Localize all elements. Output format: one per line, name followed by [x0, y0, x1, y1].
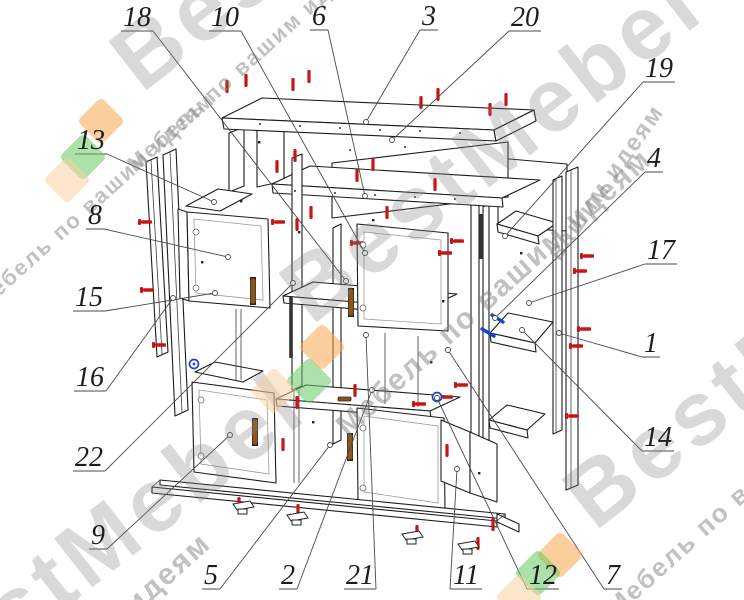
cam-screw-head	[580, 253, 583, 259]
cam-screw-marker	[583, 254, 594, 257]
hinge-hole	[193, 229, 199, 235]
cam-screw-head	[450, 238, 453, 244]
bottom-mid-door	[357, 408, 445, 511]
assembly-exploded-diagram	[0, 0, 744, 600]
drill-hole-dot	[454, 198, 456, 200]
hinge-hole	[193, 285, 199, 291]
drill-hole-dot	[379, 129, 381, 131]
leader-target-11	[455, 467, 460, 472]
dowel-marker	[353, 384, 356, 397]
leader-target-7	[446, 348, 451, 353]
door-handle	[349, 289, 354, 316]
door-handle-horizontal	[338, 397, 351, 401]
dowel-marker	[488, 103, 491, 116]
leader-line-11	[450, 469, 457, 589]
top-small-panel-b	[257, 124, 284, 187]
drill-hole-dot	[294, 190, 296, 192]
fitting-dot	[201, 261, 203, 263]
cam-screw-marker	[415, 402, 426, 405]
hinge-hole	[198, 397, 204, 403]
leader-line-9	[107, 435, 230, 549]
dowel-marker	[355, 169, 358, 182]
leader-line-17	[529, 264, 645, 303]
eccentric-fitting-center	[193, 363, 196, 366]
drill-hole-dot	[459, 132, 461, 134]
leader-target-17	[527, 301, 532, 306]
door-handle	[348, 434, 353, 460]
leader-target-2	[370, 388, 375, 393]
leader-target-4	[493, 316, 498, 321]
dowel-marker	[295, 396, 298, 409]
cam-screw-marker	[274, 220, 285, 223]
top-small-panel-a	[229, 127, 244, 192]
panel-edge	[152, 480, 160, 487]
cam-screw-marker	[441, 251, 452, 254]
dowel-marker	[307, 70, 310, 83]
leader-target-16	[171, 296, 176, 301]
dowel-marker	[309, 206, 312, 219]
fitting-dot	[372, 219, 374, 221]
fitting-dot	[258, 141, 260, 143]
leader-target-10	[363, 251, 368, 256]
bottom-left-box-top	[195, 362, 263, 382]
leader-target-9	[228, 433, 233, 438]
cam-screw-head	[573, 268, 576, 274]
cam-screw-head	[412, 401, 415, 407]
cam-screw-head	[454, 382, 457, 388]
door-handle	[251, 278, 256, 304]
drill-hole-dot	[404, 146, 406, 148]
cam-screw-marker	[580, 327, 591, 330]
leader-target-18	[344, 279, 349, 284]
dowel-marker	[295, 218, 298, 231]
drill-hole-dot	[374, 194, 376, 196]
leader-target-12	[435, 396, 440, 401]
base-rail-end	[497, 514, 519, 532]
leader-target-6	[363, 194, 368, 199]
adjustable-foot-base	[238, 509, 247, 514]
hinge-hole	[360, 425, 366, 431]
cam-screw-marker	[141, 220, 152, 223]
cam-screw-head	[438, 250, 441, 256]
dowel-marker	[293, 149, 296, 162]
cam-screw-head	[565, 413, 568, 419]
leader-target-22	[291, 281, 296, 286]
mid-upper-door	[357, 224, 448, 331]
furniture-assembly-page: BestMebelBestMebelBestMebelBestMebelМебе…	[0, 0, 744, 600]
dowel-marker	[419, 96, 422, 109]
fitting-dot	[442, 300, 444, 302]
drill-hole-dot	[414, 196, 416, 198]
leader-target-19	[503, 234, 508, 239]
fitting-dot	[478, 472, 480, 474]
leader-target-1	[557, 331, 562, 336]
cam-screw-head	[569, 343, 572, 349]
dowel-marker	[225, 80, 228, 93]
dowel-marker	[385, 206, 388, 219]
right-bottom-box-right	[470, 432, 497, 502]
cam-screw-marker	[143, 288, 154, 291]
leader-target-3	[364, 120, 369, 125]
fitting-dot	[240, 200, 242, 202]
cam-screw-head	[152, 342, 155, 348]
dowel-marker	[275, 160, 278, 173]
hinge-hole	[360, 485, 366, 491]
partition-c1	[292, 154, 302, 390]
cam-screw-marker	[576, 269, 587, 272]
dowel-marker	[433, 178, 436, 191]
leader-line-13	[107, 154, 214, 202]
right-wall-inner	[553, 176, 562, 434]
leader-target-13	[212, 200, 217, 205]
right-bottom-box-left	[441, 420, 470, 493]
adjustable-foot-base	[292, 520, 301, 525]
right-partition-a	[471, 200, 479, 450]
cam-screw-head	[577, 326, 580, 332]
drill-hole-dot	[334, 192, 336, 194]
cam-screw-marker	[457, 383, 468, 386]
fitting-dot	[520, 252, 522, 254]
drill-hole-dot	[339, 127, 341, 129]
leader-target-15	[213, 291, 218, 296]
right-wall-outer	[566, 167, 578, 490]
door-handle	[253, 419, 258, 445]
leader-target-8	[226, 255, 231, 260]
leader-target-5	[328, 443, 333, 448]
dowel-marker	[371, 158, 374, 171]
fitting-dot	[430, 361, 432, 363]
cam-screw-head	[350, 240, 353, 246]
dowel-marker	[436, 88, 439, 101]
dowel-marker	[445, 444, 448, 457]
dowel-marker	[504, 93, 507, 106]
right-partition-b	[483, 204, 489, 446]
cam-screw-marker	[572, 344, 583, 347]
dowel-marker	[281, 438, 284, 451]
leader-target-21	[364, 333, 369, 338]
cam-screw-marker	[442, 395, 453, 398]
drill-hole-dot	[299, 125, 301, 127]
leader-target-20	[390, 138, 395, 143]
cam-screw-head	[271, 219, 274, 225]
drill-hole-dot	[259, 123, 261, 125]
bottom-left-door	[192, 382, 276, 483]
dowel-marker	[291, 78, 294, 91]
cam-screw-marker	[453, 239, 464, 242]
drill-hole-dot	[419, 130, 421, 132]
fitting-dot	[298, 231, 300, 233]
drill-hole-dot	[349, 149, 351, 151]
adjustable-foot-base	[463, 549, 472, 554]
leader-line-14	[522, 330, 642, 451]
cam-screw-head	[138, 219, 141, 225]
cam-screw-marker	[155, 343, 166, 346]
cam-screw-marker	[568, 414, 579, 417]
fitting-dot	[312, 421, 314, 423]
adjustable-foot-base	[407, 539, 416, 544]
hinge-hole	[360, 305, 366, 311]
cam-screw-head	[140, 287, 143, 293]
leader-target-14	[520, 328, 525, 333]
hinge-hole	[198, 453, 204, 459]
dowel-marker	[244, 74, 247, 87]
